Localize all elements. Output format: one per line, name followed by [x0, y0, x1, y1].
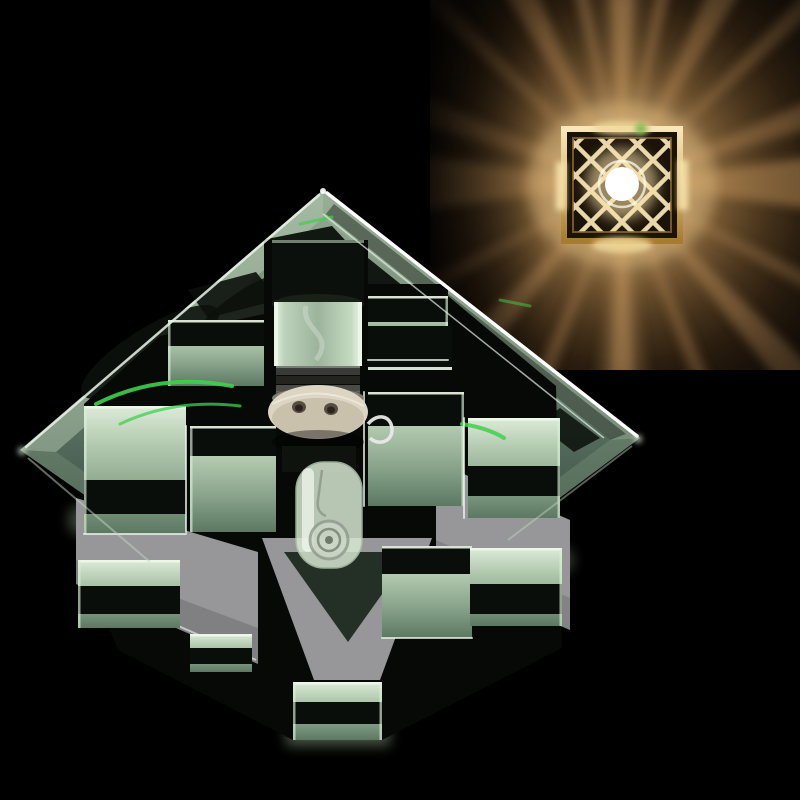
cube-band: [470, 584, 562, 614]
corner-glint: [634, 435, 642, 443]
cube-band: [190, 648, 252, 664]
cube-edge-highlight: [382, 546, 472, 549]
tube-edge-highlight: [358, 302, 361, 366]
photo-canvas: [0, 0, 800, 800]
tube-edge-highlight: [275, 302, 278, 366]
glass-cube-tile: [84, 406, 186, 534]
cube-edge-highlight: [84, 406, 87, 534]
cube-edge-highlight: [78, 560, 180, 563]
glass-cube-tile: [190, 426, 276, 532]
cube-edge-highlight: [293, 682, 296, 740]
halogen-bulb-tip: [325, 536, 333, 544]
cube-band: [190, 426, 276, 456]
side-glint-left: [556, 162, 566, 210]
cube-edge-highlight: [470, 548, 562, 551]
cube-band: [293, 702, 382, 724]
cube-edge-highlight: [190, 426, 193, 532]
bottom-glint: [592, 237, 652, 253]
glass-cube-tile: [78, 560, 180, 628]
cube-edge-highlight: [368, 367, 452, 370]
tube-cap-edge: [272, 240, 364, 243]
socket-thread-ring: [276, 376, 360, 384]
cube-edge-highlight: [368, 392, 464, 395]
cube-band: [168, 320, 264, 346]
socket-pin-hole-inner: [327, 407, 335, 414]
cube-edge-highlight: [168, 320, 264, 323]
glass-cube-tile: [293, 682, 382, 740]
cube-edge-highlight: [380, 682, 383, 740]
cube-band: [368, 326, 452, 370]
thread-highlight: [276, 366, 360, 368]
cube-band: [368, 392, 464, 426]
product-photo: [0, 0, 800, 800]
glass-cube-tile: [468, 418, 560, 518]
glass-cube-tile: [168, 320, 264, 386]
socket-pin-hole-inner: [295, 405, 303, 412]
cube-band: [78, 586, 180, 614]
cube-edge-highlight: [293, 682, 382, 685]
apex-glint: [320, 188, 326, 194]
cube-band: [84, 480, 186, 514]
glass-cube-tile: [382, 546, 472, 638]
cube-face: [84, 406, 186, 534]
glass-cube-tile: [368, 392, 464, 506]
glass-cube-tile: [368, 326, 452, 370]
cube-edge-highlight: [190, 426, 276, 429]
cube-edge-highlight: [468, 418, 560, 421]
glass-cube-tile: [470, 548, 562, 626]
corner-glint: [18, 447, 26, 455]
cube-edge-highlight: [190, 634, 252, 637]
side-glint-right: [678, 160, 688, 210]
cube-band: [368, 296, 448, 322]
cube-edge-highlight: [368, 296, 448, 299]
cube-band: [382, 546, 472, 574]
cube-edge-highlight: [168, 320, 171, 386]
cube-edge-highlight: [78, 560, 81, 628]
cube-band: [468, 466, 560, 496]
lit-bulb: [605, 167, 639, 201]
green-lens-flare: [635, 123, 647, 135]
glass-cube-tile: [190, 634, 252, 672]
cube-edge-highlight: [560, 548, 563, 626]
